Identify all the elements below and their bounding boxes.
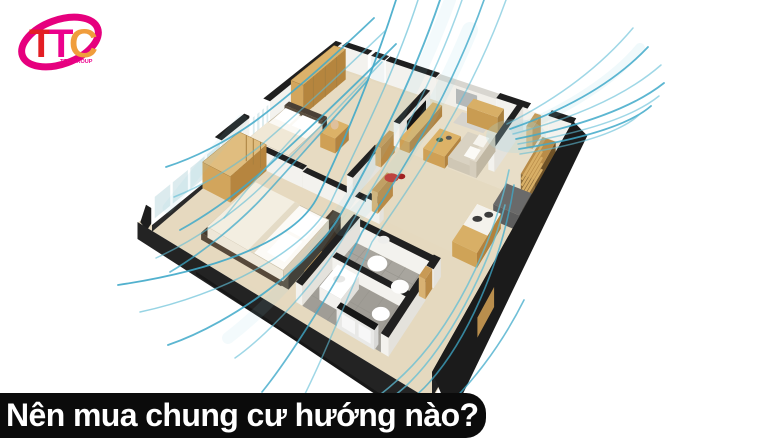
svg-text:TTC GROUP: TTC GROUP bbox=[60, 59, 93, 65]
